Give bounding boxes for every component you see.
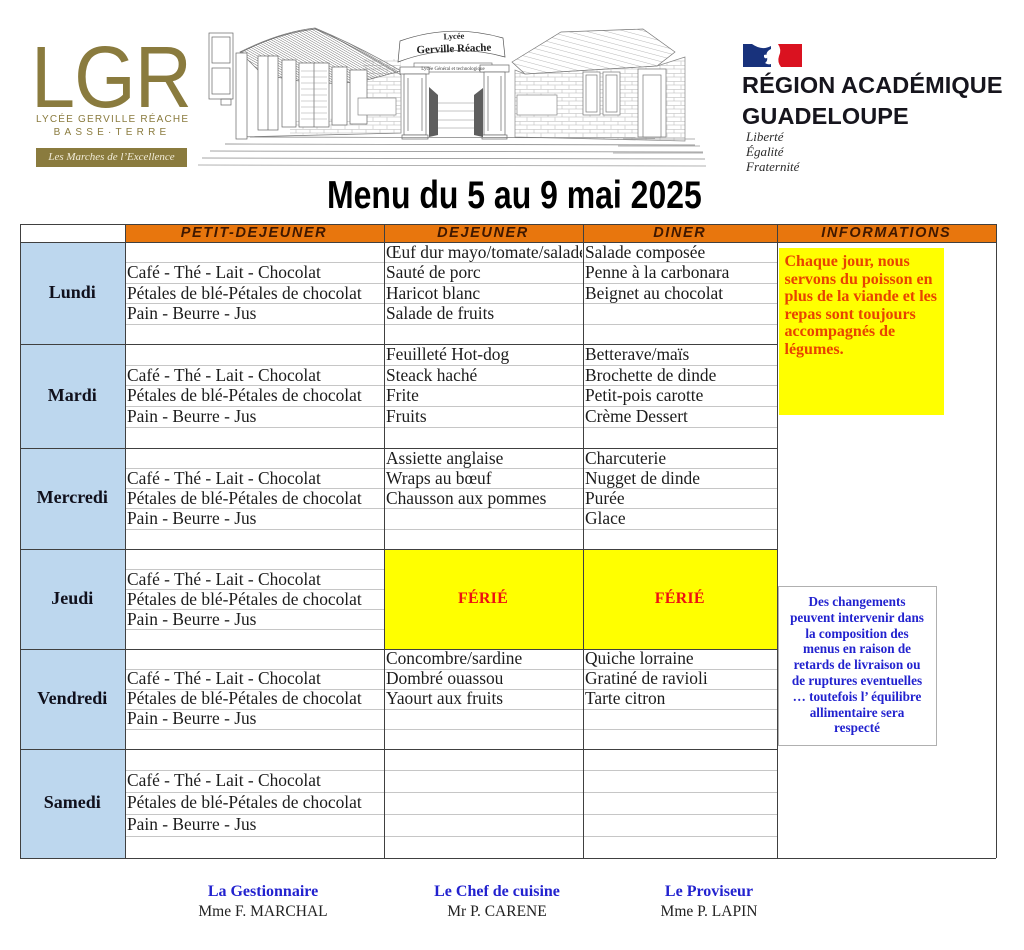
svg-text:Gerville Réache: Gerville Réache <box>416 42 491 57</box>
svg-text:Lycée: Lycée <box>443 31 464 42</box>
svg-text:Lycée Général et technologique: Lycée Général et technologique <box>421 67 485 72</box>
